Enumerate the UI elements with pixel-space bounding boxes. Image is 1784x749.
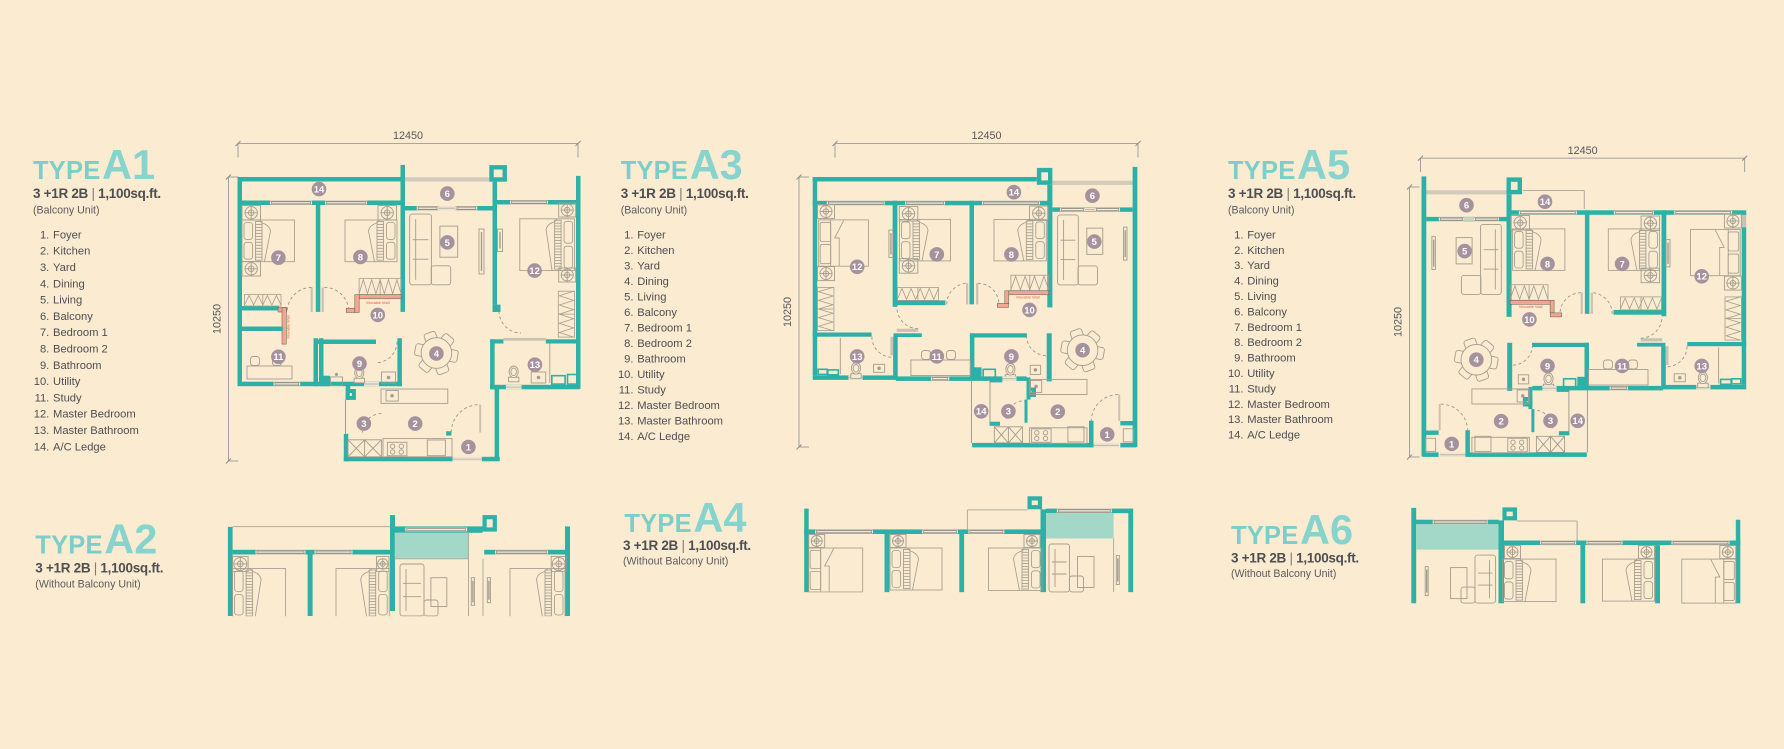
svg-text:9.: 9. <box>1234 353 1243 365</box>
svg-text:12450: 12450 <box>1568 145 1598 157</box>
svg-text:A3: A3 <box>690 141 743 188</box>
svg-text:4: 4 <box>1474 355 1480 366</box>
svg-text:Balcony: Balcony <box>1247 306 1287 318</box>
svg-text:Dining: Dining <box>1247 276 1279 288</box>
svg-text:8: 8 <box>1009 250 1014 261</box>
svg-text:TYPE: TYPE <box>1228 157 1295 185</box>
svg-text:5.: 5. <box>624 291 633 303</box>
svg-text:TYPE: TYPE <box>1231 522 1298 550</box>
svg-text:A1: A1 <box>102 141 155 188</box>
svg-text:Master Bedroom: Master Bedroom <box>637 400 720 412</box>
svg-text:3: 3 <box>1006 407 1011 418</box>
svg-text:5: 5 <box>1462 247 1468 258</box>
svg-text:4.: 4. <box>40 278 49 290</box>
svg-text:Foyer: Foyer <box>1247 229 1276 241</box>
svg-text:TYPE: TYPE <box>33 157 100 185</box>
svg-text:Movable Wall: Movable Wall <box>1016 295 1039 300</box>
svg-text:14: 14 <box>1009 188 1020 199</box>
svg-text:(Balcony Unit): (Balcony Unit) <box>621 205 688 217</box>
svg-text:A5: A5 <box>1297 141 1350 188</box>
svg-text:14.: 14. <box>34 441 50 453</box>
svg-text:12.: 12. <box>34 409 50 421</box>
svg-text:5: 5 <box>1092 237 1098 248</box>
svg-text:10: 10 <box>373 310 384 321</box>
svg-text:7: 7 <box>276 253 281 264</box>
svg-text:Living: Living <box>1247 291 1276 303</box>
svg-text:Balcony: Balcony <box>637 307 677 319</box>
svg-text:3 +1R 2B | 1,100sq.ft.: 3 +1R 2B | 1,100sq.ft. <box>33 186 161 201</box>
svg-text:8.: 8. <box>624 338 633 350</box>
svg-text:9.: 9. <box>40 360 49 372</box>
svg-text:8.: 8. <box>1234 337 1243 349</box>
svg-text:Movable Wall: Movable Wall <box>1519 304 1542 309</box>
svg-text:11.: 11. <box>35 392 50 404</box>
svg-text:Master Bedroom: Master Bedroom <box>53 409 136 421</box>
svg-text:1: 1 <box>466 442 472 453</box>
svg-text:1: 1 <box>1105 430 1111 441</box>
svg-text:11.: 11. <box>619 384 634 396</box>
svg-text:4: 4 <box>434 349 440 360</box>
svg-text:Balcony: Balcony <box>53 311 93 323</box>
svg-text:A/C Ledge: A/C Ledge <box>53 441 106 453</box>
svg-text:7.: 7. <box>624 322 633 334</box>
svg-text:Foyer: Foyer <box>637 229 666 241</box>
svg-text:1.: 1. <box>624 229 633 241</box>
svg-text:10250: 10250 <box>212 304 224 334</box>
svg-text:Kitchen: Kitchen <box>53 246 90 258</box>
svg-text:11: 11 <box>1617 361 1628 372</box>
svg-text:Study: Study <box>53 392 82 404</box>
svg-text:6.: 6. <box>624 307 633 319</box>
svg-text:Master Bathroom: Master Bathroom <box>1247 414 1333 426</box>
svg-text:12450: 12450 <box>393 130 423 142</box>
svg-text:5.: 5. <box>1234 291 1243 303</box>
svg-text:(Without Balcony Unit): (Without Balcony Unit) <box>35 579 140 591</box>
svg-text:5: 5 <box>445 238 451 249</box>
svg-text:3 +1R 2B | 1,100sq.ft.: 3 +1R 2B | 1,100sq.ft. <box>1231 551 1359 566</box>
svg-text:11.: 11. <box>1229 383 1244 395</box>
svg-text:Yard: Yard <box>1247 260 1270 272</box>
svg-text:Kitchen: Kitchen <box>1247 245 1284 257</box>
svg-text:Study: Study <box>637 384 666 396</box>
svg-text:2: 2 <box>413 419 418 430</box>
svg-text:9: 9 <box>1009 352 1014 363</box>
svg-text:2.: 2. <box>40 246 49 258</box>
svg-text:12450: 12450 <box>971 130 1001 142</box>
svg-text:Bedroom 2: Bedroom 2 <box>1247 337 1302 349</box>
svg-text:Utility: Utility <box>1247 368 1275 380</box>
svg-text:8.: 8. <box>40 344 49 356</box>
svg-text:6.: 6. <box>1234 306 1243 318</box>
svg-text:14.: 14. <box>1228 430 1244 442</box>
svg-text:3 +1R 2B | 1,100sq.ft.: 3 +1R 2B | 1,100sq.ft. <box>621 186 749 201</box>
svg-text:13: 13 <box>1696 361 1707 372</box>
svg-text:3.: 3. <box>624 260 633 272</box>
svg-text:2: 2 <box>1055 407 1060 418</box>
svg-text:3 +1R 2B | 1,100sq.ft.: 3 +1R 2B | 1,100sq.ft. <box>1228 186 1356 201</box>
svg-text:TYPE: TYPE <box>35 531 102 559</box>
svg-text:A2: A2 <box>104 515 157 562</box>
svg-text:1: 1 <box>1449 439 1455 450</box>
svg-text:3: 3 <box>361 419 366 430</box>
svg-text:10250: 10250 <box>1393 307 1405 337</box>
svg-text:14: 14 <box>1572 416 1583 427</box>
svg-text:A4: A4 <box>693 494 746 541</box>
svg-text:12.: 12. <box>1228 399 1244 411</box>
svg-text:13: 13 <box>852 352 863 363</box>
svg-text:11: 11 <box>932 352 943 363</box>
svg-text:10250: 10250 <box>782 297 794 327</box>
svg-text:14: 14 <box>314 185 325 196</box>
svg-text:Living: Living <box>637 291 666 303</box>
svg-text:10.: 10. <box>618 369 634 381</box>
svg-text:A/C Ledge: A/C Ledge <box>1247 430 1300 442</box>
svg-text:9.: 9. <box>624 353 633 365</box>
svg-text:10.: 10. <box>34 376 50 388</box>
svg-text:13.: 13. <box>34 425 50 437</box>
svg-text:(Balcony Unit): (Balcony Unit) <box>33 205 100 217</box>
svg-text:9: 9 <box>1545 361 1550 372</box>
svg-text:(Balcony Unit): (Balcony Unit) <box>1228 205 1295 217</box>
svg-text:4: 4 <box>1080 346 1086 357</box>
svg-text:Bedroom 1: Bedroom 1 <box>53 327 108 339</box>
svg-text:10.: 10. <box>1228 368 1244 380</box>
svg-text:14: 14 <box>1540 197 1551 208</box>
svg-text:Bathroom: Bathroom <box>53 360 102 372</box>
svg-text:3.: 3. <box>1234 260 1243 272</box>
svg-text:8: 8 <box>1545 259 1550 270</box>
svg-text:12: 12 <box>529 266 540 277</box>
svg-text:7: 7 <box>934 250 939 261</box>
svg-text:12: 12 <box>852 262 863 273</box>
svg-text:Master Bathroom: Master Bathroom <box>53 425 139 437</box>
svg-text:A6: A6 <box>1300 506 1353 553</box>
svg-text:Utility: Utility <box>53 376 81 388</box>
svg-text:3 +1R 2B | 1,100sq.ft.: 3 +1R 2B | 1,100sq.ft. <box>35 561 163 576</box>
svg-text:5.: 5. <box>40 295 49 307</box>
svg-text:9: 9 <box>357 359 362 370</box>
svg-text:1.: 1. <box>1234 229 1243 241</box>
svg-text:2.: 2. <box>1234 245 1243 257</box>
svg-text:Master Bedroom: Master Bedroom <box>1247 399 1330 411</box>
svg-text:10: 10 <box>1024 305 1035 316</box>
svg-text:13: 13 <box>530 360 541 371</box>
svg-text:1.: 1. <box>40 229 49 241</box>
svg-text:Movable Wall: Movable Wall <box>366 300 389 305</box>
svg-text:Master Bathroom: Master Bathroom <box>637 415 723 427</box>
svg-text:Utility: Utility <box>637 369 665 381</box>
svg-text:Bathroom: Bathroom <box>637 353 686 365</box>
svg-text:TYPE: TYPE <box>624 510 691 538</box>
svg-text:6: 6 <box>1464 201 1469 212</box>
svg-text:3.: 3. <box>40 262 49 274</box>
svg-text:A/C Ledge: A/C Ledge <box>637 431 690 443</box>
svg-text:Movable Wall: Movable Wall <box>285 315 290 338</box>
svg-text:Dining: Dining <box>53 278 85 290</box>
svg-text:10: 10 <box>1524 315 1535 326</box>
svg-text:14: 14 <box>976 407 987 418</box>
svg-text:7.: 7. <box>1234 322 1243 334</box>
svg-text:12.: 12. <box>618 400 634 412</box>
svg-text:2: 2 <box>1498 417 1503 428</box>
svg-text:7.: 7. <box>40 327 49 339</box>
svg-text:4.: 4. <box>1234 276 1243 288</box>
svg-text:Bedroom 2: Bedroom 2 <box>53 344 108 356</box>
svg-text:8: 8 <box>358 252 363 263</box>
svg-text:TYPE: TYPE <box>621 157 688 185</box>
svg-text:2.: 2. <box>624 245 633 257</box>
svg-text:13.: 13. <box>618 415 634 427</box>
svg-text:3 +1R 2B | 1,100sq.ft.: 3 +1R 2B | 1,100sq.ft. <box>623 538 751 553</box>
svg-text:Dining: Dining <box>637 276 669 288</box>
svg-text:11: 11 <box>273 352 284 363</box>
svg-text:Bedroom 2: Bedroom 2 <box>637 338 692 350</box>
svg-text:6.: 6. <box>40 311 49 323</box>
svg-text:Bedroom 1: Bedroom 1 <box>1247 322 1302 334</box>
svg-text:13.: 13. <box>1228 414 1244 426</box>
svg-text:Bathroom: Bathroom <box>1247 353 1296 365</box>
svg-text:Bedroom 1: Bedroom 1 <box>637 322 692 334</box>
svg-text:6: 6 <box>1090 191 1095 202</box>
svg-text:12: 12 <box>1696 272 1707 283</box>
svg-text:6: 6 <box>445 189 450 200</box>
svg-text:Yard: Yard <box>637 260 660 272</box>
svg-text:Kitchen: Kitchen <box>637 245 674 257</box>
svg-text:7: 7 <box>1619 259 1624 270</box>
svg-text:(Without Balcony Unit): (Without Balcony Unit) <box>623 555 728 567</box>
svg-text:Living: Living <box>53 295 82 307</box>
svg-text:Foyer: Foyer <box>53 229 82 241</box>
svg-text:4.: 4. <box>624 276 633 288</box>
svg-text:Yard: Yard <box>53 262 76 274</box>
svg-text:(Without Balcony Unit): (Without Balcony Unit) <box>1231 568 1336 580</box>
svg-text:14.: 14. <box>618 431 634 443</box>
svg-text:Study: Study <box>1247 383 1276 395</box>
svg-text:3: 3 <box>1548 416 1553 427</box>
